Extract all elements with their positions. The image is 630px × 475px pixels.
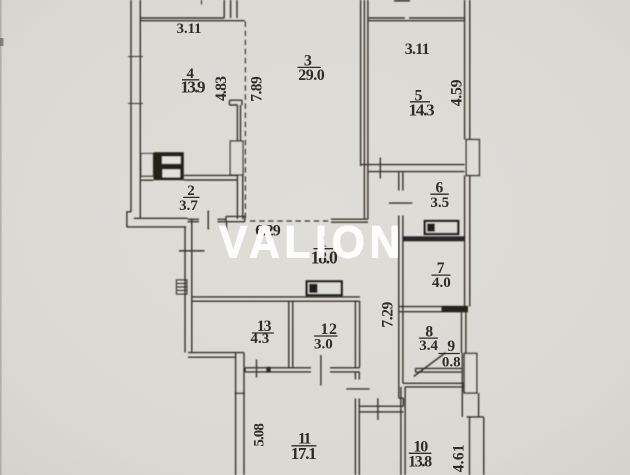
svg-text:0.8: 0.8 <box>442 355 461 371</box>
svg-text:4.59: 4.59 <box>448 79 465 106</box>
svg-text:3.7: 3.7 <box>179 198 198 214</box>
svg-text:4.61: 4.61 <box>450 444 467 472</box>
svg-text:3.11: 3.11 <box>177 21 202 37</box>
svg-text:5.08: 5.08 <box>251 423 267 447</box>
svg-text:3.4: 3.4 <box>419 338 438 354</box>
svg-text:7.89: 7.89 <box>249 76 266 102</box>
svg-text:VALION: VALION <box>219 217 405 268</box>
svg-text:9: 9 <box>447 338 455 355</box>
svg-text:17.1: 17.1 <box>291 444 317 463</box>
svg-text:13.8: 13.8 <box>408 453 432 470</box>
svg-text:14.3: 14.3 <box>409 100 435 119</box>
svg-text:4.83: 4.83 <box>213 76 230 101</box>
svg-text:13.9: 13.9 <box>181 78 206 97</box>
svg-text:7.29: 7.29 <box>379 301 396 327</box>
svg-text:3.5: 3.5 <box>430 195 449 211</box>
svg-text:3.11: 3.11 <box>405 41 430 58</box>
svg-text:3.0: 3.0 <box>314 336 333 352</box>
svg-text:4.0: 4.0 <box>432 275 451 291</box>
svg-text:29.0: 29.0 <box>298 67 325 84</box>
svg-text:4.3: 4.3 <box>251 331 270 347</box>
